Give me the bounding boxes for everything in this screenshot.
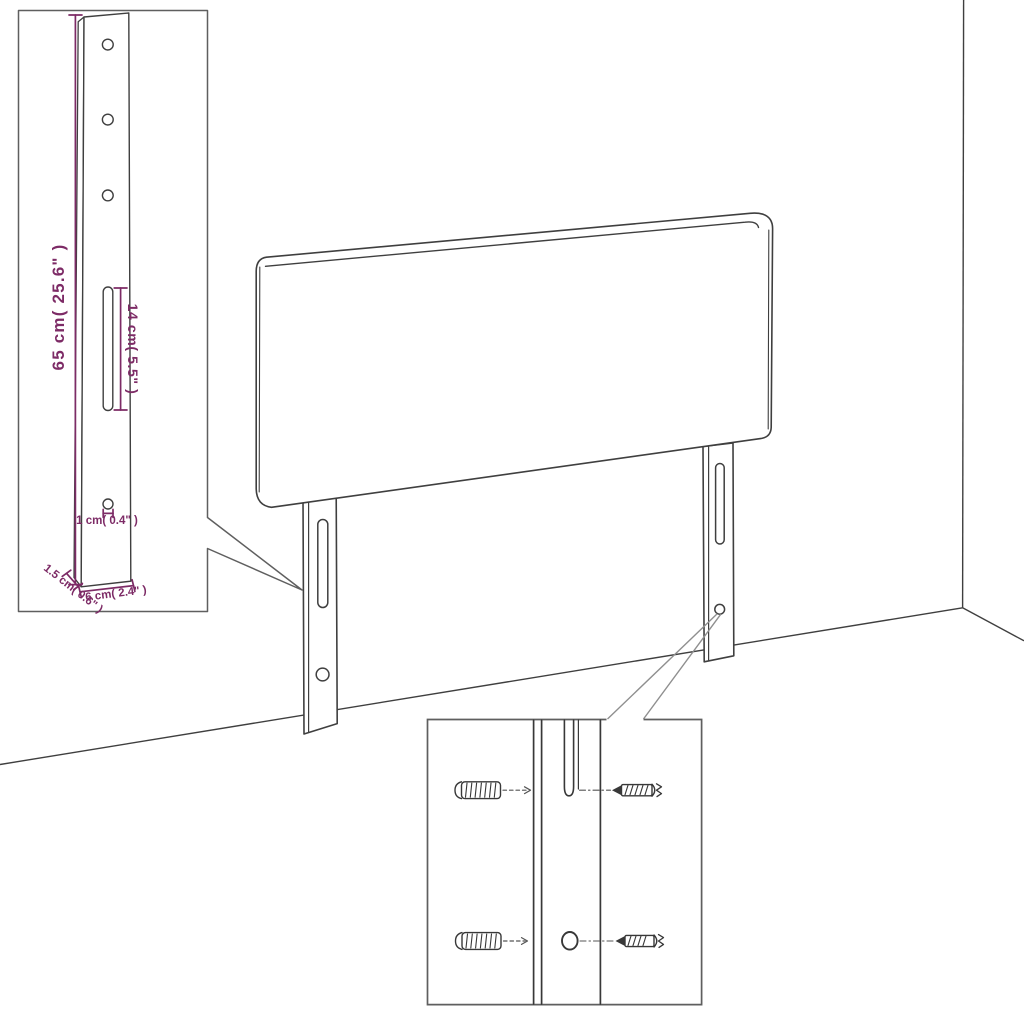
bracket-hole-1	[102, 39, 113, 50]
callout-line-right	[644, 614, 721, 719]
dimension-label-slot-length: 14 cm( 5.5" )	[125, 304, 141, 395]
headboard-left-leg	[303, 494, 337, 734]
bracket-slot	[103, 287, 113, 411]
headboard-right-leg	[703, 443, 734, 662]
left-leg-slot	[318, 520, 328, 608]
panel-right-thickness-line	[768, 230, 769, 429]
panel-outline	[256, 213, 772, 507]
right-leg-hole	[715, 604, 725, 614]
right-leg-slot	[716, 464, 725, 545]
assembly-diagram-page: 65 cm( 25.6" ) 14 cm( 5.5" ) 1 cm( 0.4" …	[0, 0, 1024, 1024]
headboard-panel	[256, 213, 772, 507]
headboard	[256, 213, 772, 734]
wall-corner-line	[963, 0, 964, 608]
floor-line-right	[963, 608, 1024, 641]
callout-line-left	[608, 614, 718, 719]
bracket-drawing	[74, 13, 131, 587]
bracket-small-hole	[103, 499, 113, 509]
panel-left-thickness-line	[259, 267, 260, 492]
bracket-hole-3	[102, 190, 113, 201]
bracket-hole-2	[102, 114, 113, 125]
mounting-detail-inset	[428, 720, 703, 1006]
left-leg-hole	[316, 668, 329, 681]
dimension-label-height: 65 cm( 25.6" )	[49, 244, 69, 371]
dimension-label-hole-diameter: 1 cm( 0.4" )	[76, 515, 138, 527]
assembly-diagram	[0, 0, 1024, 1024]
